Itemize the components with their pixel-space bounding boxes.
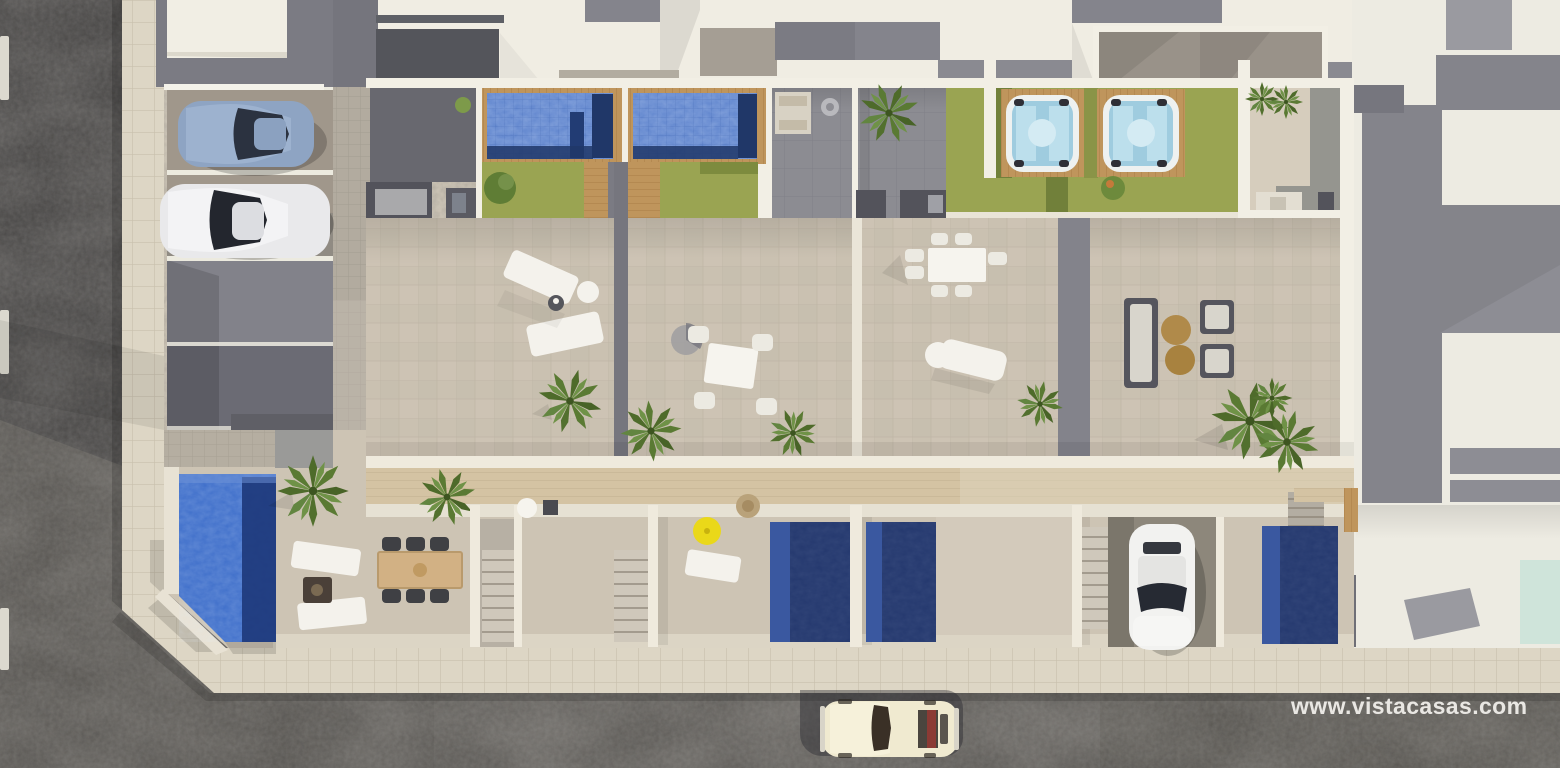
svg-text:www.vistacasas.com: www.vistacasas.com xyxy=(1290,693,1527,719)
